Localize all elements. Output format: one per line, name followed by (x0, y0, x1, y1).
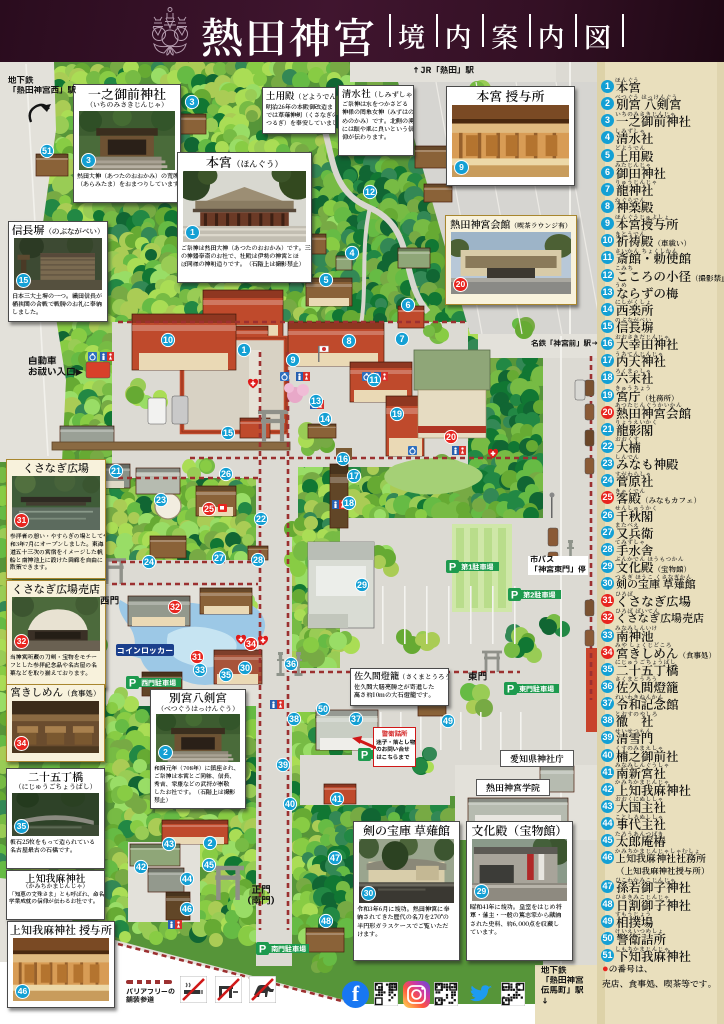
svg-text:24: 24 (144, 557, 154, 567)
svg-text:33: 33 (195, 665, 205, 675)
svg-text:25: 25 (204, 504, 214, 514)
svg-text:3: 3 (189, 97, 194, 107)
svg-text:コインロッカー: コインロッカー (117, 646, 173, 658)
svg-text:2: 2 (207, 838, 212, 848)
svg-text:14: 14 (320, 414, 330, 424)
svg-text:48: 48 (321, 916, 331, 926)
svg-text:東門駐車場: 東門駐車場 (518, 684, 554, 695)
svg-text:6: 6 (405, 300, 410, 310)
svg-text:38: 38 (289, 714, 299, 724)
svg-text:23: 23 (156, 495, 166, 505)
svg-text:26: 26 (221, 469, 231, 479)
svg-text:30: 30 (240, 663, 250, 673)
svg-text:13: 13 (311, 396, 321, 406)
svg-text:27: 27 (214, 553, 224, 563)
svg-text:41: 41 (332, 794, 342, 804)
svg-text:9: 9 (290, 355, 295, 365)
svg-text:西門駐車場: 西門駐車場 (141, 678, 176, 689)
svg-text:P: P (511, 590, 518, 602)
svg-text:5: 5 (323, 275, 328, 285)
svg-text:P: P (361, 750, 368, 762)
svg-text:22: 22 (256, 514, 266, 524)
svg-text:7: 7 (399, 334, 404, 344)
svg-text:1: 1 (241, 345, 246, 355)
svg-text:19: 19 (392, 409, 402, 419)
svg-text:42: 42 (136, 862, 146, 872)
svg-text:46: 46 (182, 904, 192, 914)
svg-text:31: 31 (192, 652, 202, 662)
svg-text:49: 49 (443, 716, 453, 726)
svg-text:16: 16 (338, 454, 348, 464)
svg-text:12: 12 (365, 187, 375, 197)
svg-text:29: 29 (357, 580, 367, 590)
svg-text:18: 18 (344, 498, 354, 508)
svg-text:11: 11 (369, 375, 379, 385)
svg-text:32: 32 (170, 602, 180, 612)
svg-text:P: P (507, 684, 514, 696)
svg-text:51: 51 (42, 146, 52, 156)
svg-text:40: 40 (285, 799, 295, 809)
svg-text:8: 8 (346, 336, 351, 346)
svg-text:10: 10 (163, 335, 173, 345)
svg-text:28: 28 (253, 555, 263, 565)
svg-text:20: 20 (446, 432, 456, 442)
svg-text:37: 37 (351, 714, 361, 724)
svg-text:17: 17 (349, 471, 359, 481)
svg-text:45: 45 (204, 860, 214, 870)
svg-text:35: 35 (221, 670, 231, 680)
svg-text:P: P (449, 562, 456, 574)
svg-text:39: 39 (278, 760, 288, 770)
svg-text:47: 47 (330, 853, 340, 863)
svg-text:P: P (259, 944, 266, 956)
svg-text:21: 21 (111, 466, 121, 476)
svg-text:50: 50 (318, 704, 328, 714)
svg-text:第1駐車場: 第1駐車場 (460, 562, 493, 573)
svg-text:36: 36 (286, 659, 296, 669)
svg-text:44: 44 (182, 874, 192, 884)
svg-text:南門駐車場: 南門駐車場 (271, 944, 306, 955)
svg-text:4: 4 (349, 248, 354, 258)
svg-text:34: 34 (246, 639, 256, 649)
svg-text:43: 43 (164, 839, 174, 849)
svg-text:P: P (129, 678, 136, 690)
svg-text:15: 15 (223, 428, 233, 438)
svg-text:第2駐車場: 第2駐車場 (522, 590, 555, 601)
